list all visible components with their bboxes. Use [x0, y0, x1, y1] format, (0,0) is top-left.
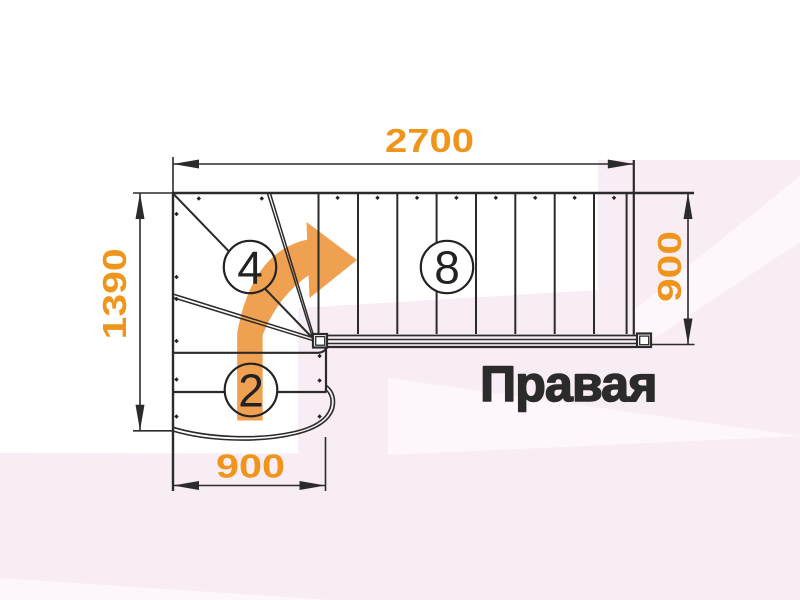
svg-text:2700: 2700: [385, 123, 474, 160]
svg-text:Правая: Правая: [480, 356, 657, 412]
svg-text:900: 900: [652, 231, 689, 302]
svg-text:1390: 1390: [97, 248, 134, 339]
svg-text:4: 4: [237, 242, 263, 294]
svg-text:900: 900: [216, 449, 285, 486]
svg-text:8: 8: [434, 242, 460, 294]
svg-text:2: 2: [238, 365, 264, 417]
